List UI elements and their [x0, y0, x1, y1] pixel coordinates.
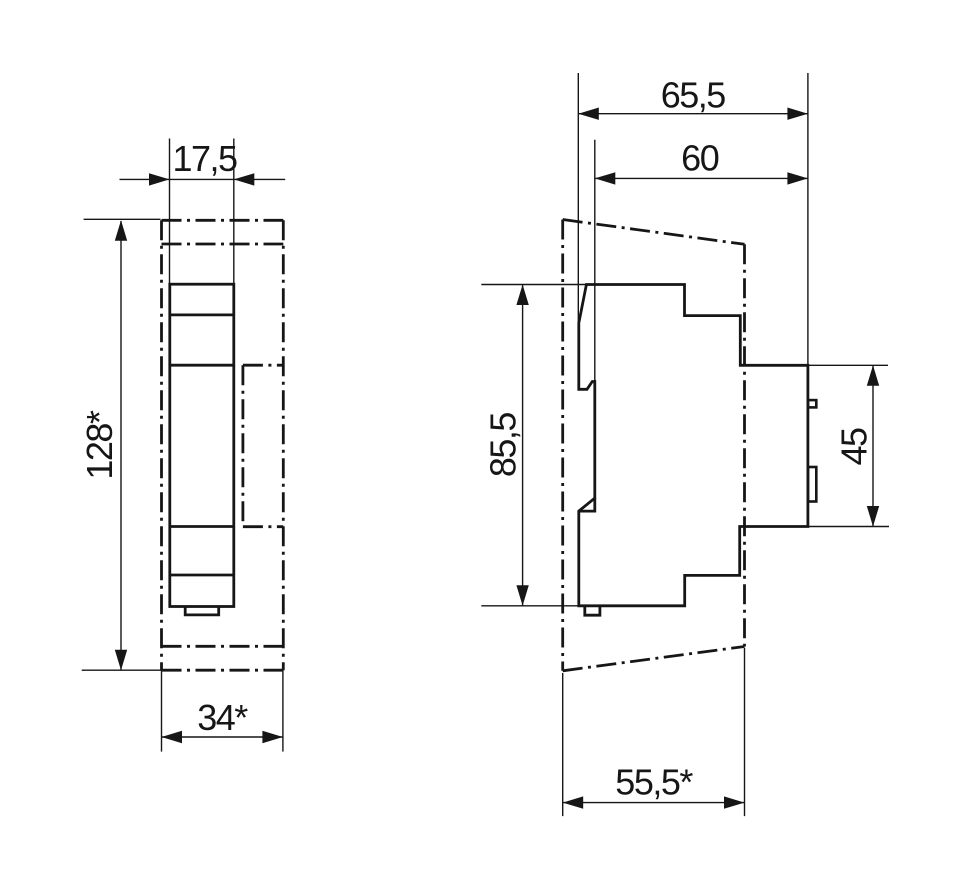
svg-text:17,5: 17,5 — [172, 138, 237, 179]
svg-text:45: 45 — [834, 428, 875, 466]
svg-text:34*: 34* — [197, 697, 248, 738]
svg-text:55,5*: 55,5* — [615, 761, 693, 802]
svg-text:128*: 128* — [79, 410, 120, 480]
svg-text:60: 60 — [681, 137, 719, 178]
svg-text:65,5: 65,5 — [661, 74, 726, 115]
svg-text:85,5: 85,5 — [482, 413, 523, 478]
